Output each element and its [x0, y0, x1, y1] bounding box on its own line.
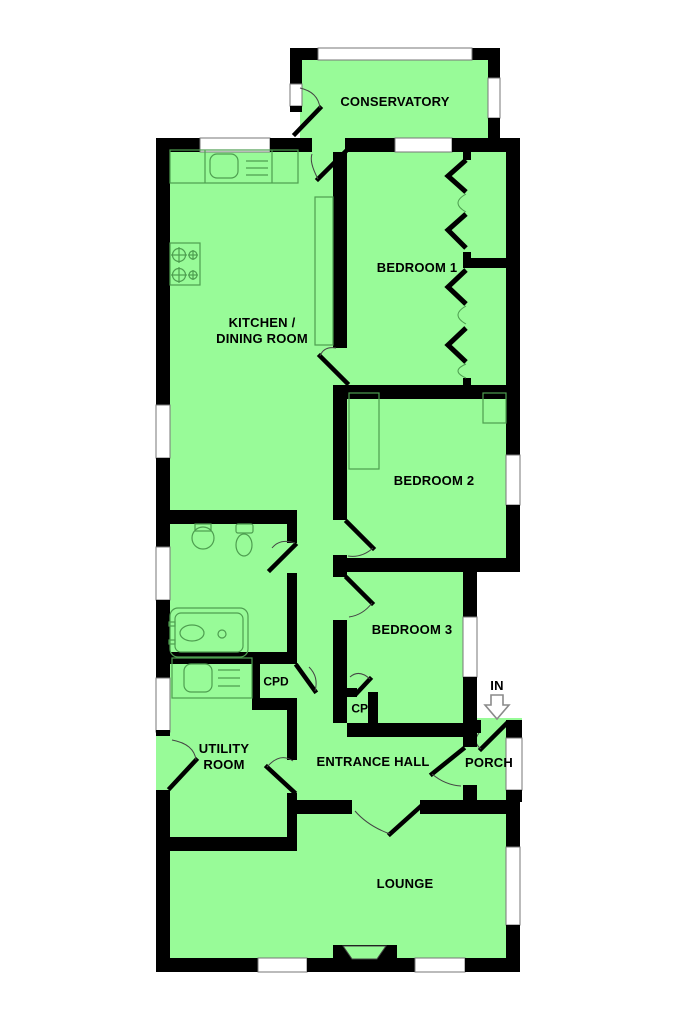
conservatory-left-window [290, 84, 302, 106]
kitchen-left-window [156, 405, 170, 458]
bedroom3-window [463, 617, 477, 677]
room-label-porch: PORCH [465, 755, 513, 771]
utility-window [156, 678, 170, 732]
bedroom1-top-window [395, 138, 452, 152]
lounge-right-window [506, 847, 520, 925]
room-label-bedroom2: BEDROOM 2 [394, 473, 475, 489]
entrance-in-label: IN [490, 678, 503, 694]
conservatory-top-window [318, 48, 472, 60]
conservatory-right-window [488, 78, 500, 118]
lounge-fireplace [333, 945, 397, 972]
bedroom2-window [506, 455, 520, 505]
room-label-bedroom3: BEDROOM 3 [372, 622, 453, 638]
lounge-bottom-window-right [415, 958, 465, 972]
room-label-bedroom3-cpd: CPD [351, 702, 376, 717]
room-label-utility: UTILITY ROOM [199, 741, 250, 774]
room-label-lounge: LOUNGE [377, 876, 434, 892]
room-label-utility-cpd: CPD [263, 675, 288, 690]
bathroom-window [156, 547, 170, 600]
lounge-bottom-window-left [258, 958, 307, 972]
floorplan-canvas [0, 0, 683, 1024]
room-label-kitchen-dining: KITCHEN / DINING ROOM [216, 315, 308, 348]
room-label-conservatory: CONSERVATORY [340, 94, 449, 110]
room-label-entrance-hall: ENTRANCE HALL [316, 754, 429, 770]
room-label-bedroom1: BEDROOM 1 [377, 260, 458, 276]
floorplan-page: CONSERVATORY KITCHEN / DINING ROOM BEDRO… [0, 0, 683, 1024]
